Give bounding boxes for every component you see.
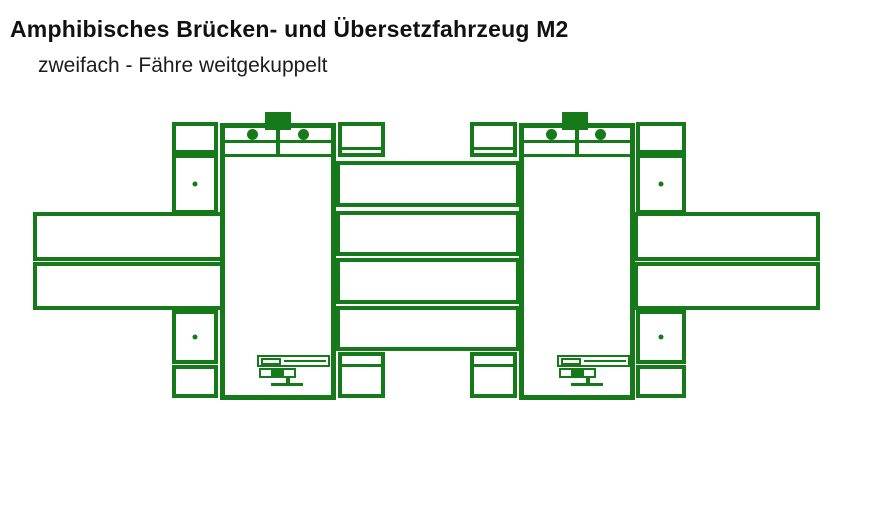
deck-float-bottom-right-divider [473,364,514,367]
left-winch-bar-rod [284,360,326,362]
bridge-deck-plate-3 [336,258,520,304]
deck-float-bottom-left [338,352,385,398]
left-pontoon-top-box [172,122,218,154]
deck-float-top-right [470,122,517,157]
right-pontoon-top-box [636,122,686,154]
left-winch-cell-2 [273,370,283,376]
deck-float-top-left-divider [341,147,382,150]
left-ramp-lower [33,262,224,310]
right-winch-cell-2 [573,370,583,376]
right-hatch-circle-1 [546,129,557,140]
left-winch-base [271,383,303,386]
right-winch-cell-1 [561,370,571,376]
left-upper-float-dot [193,182,198,187]
right-pontoon-bottom-box [636,365,686,398]
left-winch-bar-end-box [261,358,281,365]
left-winch-cell-3 [284,370,294,376]
right-cab-block [562,112,588,130]
right-pontoon-upper-float [636,154,686,214]
bridge-deck-plate-4 [336,306,520,351]
deck-float-top-left [338,122,385,157]
deck-float-top-right-divider [473,147,514,150]
right-hatch-circle-2 [595,129,606,140]
right-upper-float-dot [659,182,664,187]
right-winch-base [571,383,603,386]
left-hatch-circle-1 [247,129,258,140]
right-lower-float-dot [659,335,664,340]
left-pontoon-upper-float [172,154,218,214]
bridge-deck-plate-1 [336,161,520,207]
left-cab-block [265,112,291,130]
right-ramp-upper [634,212,820,261]
vehicle-diagram [0,0,886,512]
right-winch-cell-3 [584,370,594,376]
left-ramp-upper [33,212,224,261]
right-hull-band-divider [575,128,579,157]
right-winch-bar-end-box [561,358,581,365]
deck-float-bottom-left-divider [341,364,382,367]
right-winch-bar-rod [584,360,626,362]
left-winch-cell-1 [261,370,271,376]
right-winch-control-box [559,368,596,378]
left-winch-control-box [259,368,296,378]
right-ramp-lower [634,262,820,310]
bridge-deck-plate-2 [336,211,520,256]
left-lower-float-dot [193,335,198,340]
left-pontoon-bottom-box [172,365,218,398]
deck-float-bottom-right [470,352,517,398]
right-pontoon-lower-float [636,310,686,364]
left-pontoon-lower-float [172,310,218,364]
left-hatch-circle-2 [298,129,309,140]
left-hull-band-divider [276,128,280,157]
